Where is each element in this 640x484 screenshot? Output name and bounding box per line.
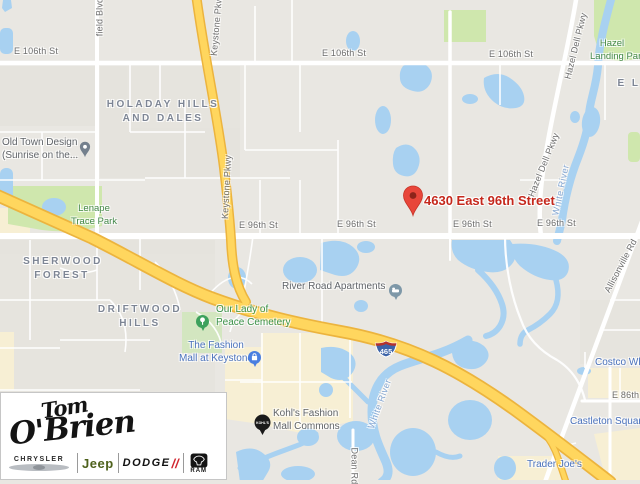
chrysler-wing-icon [9, 464, 69, 471]
poi-label-kohls[interactable]: Mall Commons [273, 422, 340, 432]
street-label: E 106th St [322, 49, 366, 58]
poi-label-costco[interactable]: Costco Wholesale [595, 358, 640, 368]
dealer-signature-bottom: O'Brien [7, 404, 136, 453]
street-label: E 96th St [239, 221, 278, 230]
chrysler-logo: CHRYSLER [5, 456, 73, 471]
dodge-logo: DODGE // [123, 456, 179, 471]
poi-label-trader-joes[interactable]: Trader Joe's [527, 460, 582, 470]
area-label: AND DALES [123, 114, 204, 124]
divider [183, 453, 184, 473]
park-label: Trace Park [71, 217, 117, 227]
street-label: Dean Rd [350, 448, 359, 484]
dodge-slashes-icon: // [171, 456, 178, 471]
street-label: E 86th St [612, 391, 640, 400]
water-label: White River [367, 378, 393, 430]
area-label: SHERWOOD [23, 257, 103, 267]
street-label: E 106th St [14, 47, 58, 56]
street-label: E 96th St [537, 219, 576, 228]
jeep-logo: Jeep [82, 456, 114, 471]
destination-label[interactable]: 4630 East 96th Street [424, 194, 555, 207]
dealer-logo[interactable]: Tom O'Brien CHRYSLER Jeep DODGE // RAM [0, 392, 227, 480]
area-label: HOLADAY HILLS [107, 100, 220, 110]
poi-label-old-town-design[interactable]: (Sunrise on the... [2, 151, 78, 161]
brand-logos-row: CHRYSLER Jeep DODGE // RAM [5, 450, 208, 476]
poi-label-castleton-square[interactable]: Castleton Square [570, 417, 640, 427]
ram-head-icon [190, 453, 208, 468]
street-label: E 106th St [489, 50, 533, 59]
street-label: Keystone Pkwy [221, 155, 233, 220]
water-label: White River [551, 164, 571, 217]
park-label: Landing Park [590, 52, 640, 62]
street-label: E 96th St [453, 220, 492, 229]
poi-label-river-road-apartments[interactable]: River Road Apartments [282, 282, 385, 292]
poi-label-fashion-mall[interactable]: Mall at Keystone [179, 354, 253, 364]
ram-logo: RAM [190, 453, 208, 474]
poi-label-fashion-mall[interactable]: The Fashion [188, 341, 244, 351]
poi-label-old-town-design[interactable]: Old Town Design [2, 138, 77, 148]
street-label: Hazel Dell Pkwy [563, 12, 588, 80]
area-label: FOREST [34, 271, 90, 281]
divider [77, 453, 78, 473]
street-label: field Blvd [96, 0, 105, 36]
poi-label-kohls[interactable]: Kohl's Fashion [273, 409, 338, 419]
area-label: E L [617, 79, 640, 89]
park-label: Hazel [600, 39, 624, 49]
park-label: Lenape [78, 204, 110, 214]
poi-label-cemetery[interactable]: Peace Cemetery [216, 318, 290, 328]
divider [118, 453, 119, 473]
street-label: E 96th St [337, 220, 376, 229]
area-label: HILLS [119, 319, 160, 329]
poi-label-cemetery[interactable]: Our Lady of [216, 305, 268, 315]
street-label: Keystone Pkwy [210, 0, 225, 56]
area-label: DRIFTWOOD [98, 305, 182, 315]
street-label: Allisonville Rd [603, 238, 639, 294]
